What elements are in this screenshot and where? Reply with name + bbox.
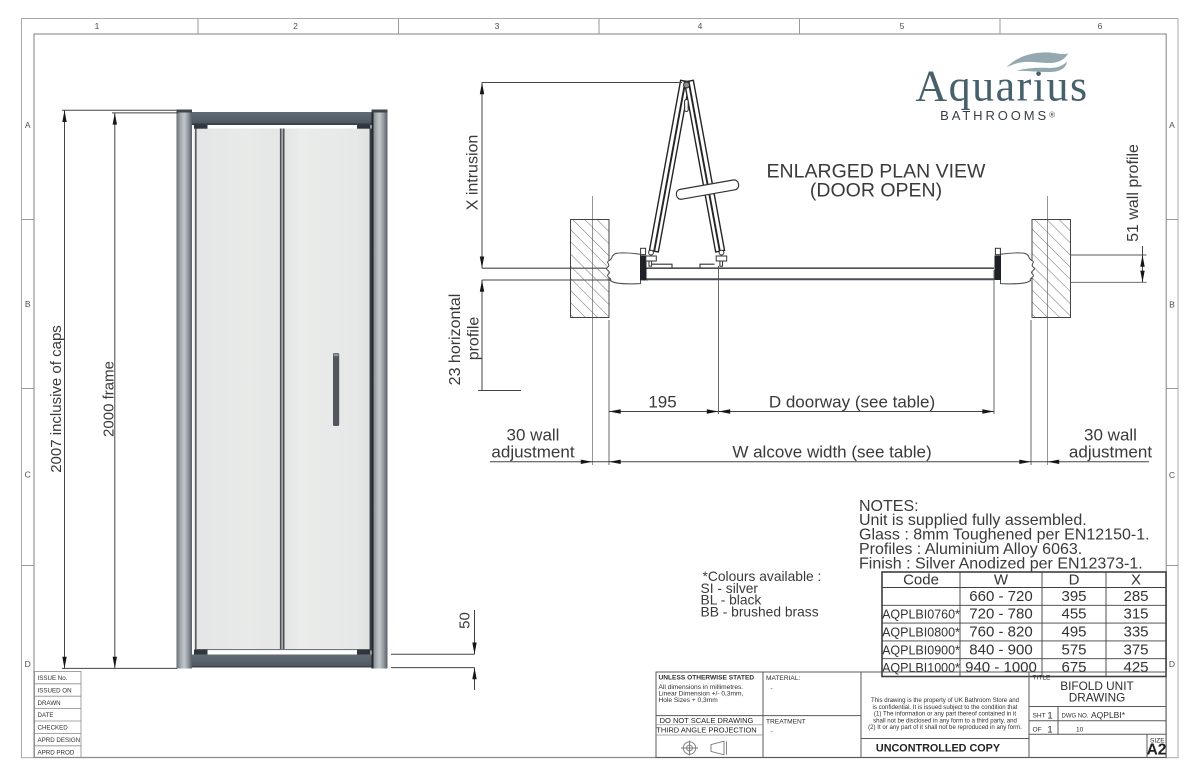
svg-text:BB - brushed brass: BB - brushed brass: [701, 604, 819, 619]
svg-text:AQPLBI*: AQPLBI*: [1091, 710, 1126, 720]
svg-text:D doorway (see table): D doorway (see table): [769, 393, 935, 412]
svg-text:APRD DESIGN: APRD DESIGN: [38, 737, 81, 744]
svg-text:1: 1: [95, 21, 100, 31]
svg-text:adjustment: adjustment: [491, 443, 574, 462]
svg-text:DRAWING: DRAWING: [1069, 691, 1126, 705]
svg-text:DRAWN: DRAWN: [38, 700, 61, 707]
svg-text:ISSUED ON: ISSUED ON: [38, 687, 72, 694]
svg-text:D: D: [1069, 572, 1080, 589]
svg-text:AQPLBI1000*: AQPLBI1000*: [882, 661, 960, 675]
svg-text:375: 375: [1123, 641, 1148, 658]
svg-text:B: B: [1169, 300, 1175, 310]
svg-text:285: 285: [1123, 588, 1148, 605]
svg-text:APRD PROD: APRD PROD: [38, 749, 75, 756]
svg-text:425: 425: [1123, 659, 1148, 676]
svg-text:760 - 820: 760 - 820: [969, 624, 1032, 641]
svg-text:profile: profile: [466, 317, 483, 361]
svg-text:6: 6: [1098, 21, 1103, 31]
svg-text:DO NOT SCALE DRAWING: DO NOT SCALE DRAWING: [660, 716, 754, 725]
svg-text:DATE: DATE: [38, 712, 54, 719]
svg-text:335: 335: [1123, 624, 1148, 641]
svg-text:A2: A2: [1147, 742, 1167, 759]
svg-text:Code: Code: [903, 572, 939, 589]
svg-text:-: -: [771, 729, 773, 736]
svg-text:1: 1: [1047, 711, 1052, 722]
svg-text:Aquarius: Aquarius: [915, 62, 1088, 111]
svg-text:(DOOR OPEN): (DOOR OPEN): [810, 180, 942, 202]
svg-text:ISSUE No.: ISSUE No.: [38, 675, 68, 682]
svg-text:23 horizontal: 23 horizontal: [447, 294, 464, 386]
svg-text:3: 3: [495, 21, 500, 31]
svg-text:2000 frame: 2000 frame: [101, 361, 118, 437]
svg-text:CHECKED: CHECKED: [38, 725, 69, 732]
svg-text:adjustment: adjustment: [1069, 443, 1152, 462]
svg-text:10: 10: [1076, 727, 1084, 734]
svg-text:840 - 900: 840 - 900: [969, 641, 1032, 658]
svg-text:TREATMENT: TREATMENT: [766, 718, 806, 725]
svg-text:A: A: [25, 120, 31, 130]
svg-text:THIRD ANGLE PROJECTION: THIRD ANGLE PROJECTION: [656, 726, 756, 735]
svg-text:315: 315: [1123, 606, 1148, 623]
svg-text:Hole Sizes + 0,3mm: Hole Sizes + 0,3mm: [659, 697, 719, 704]
svg-text:720 - 780: 720 - 780: [969, 606, 1032, 623]
svg-text:50: 50: [457, 612, 474, 629]
svg-text:455: 455: [1061, 606, 1086, 623]
svg-text:940 - 1000: 940 - 1000: [965, 659, 1037, 676]
svg-text:395: 395: [1061, 588, 1086, 605]
svg-text:495: 495: [1061, 624, 1086, 641]
svg-text:1: 1: [1047, 725, 1052, 736]
svg-text:AQPLBI0800*: AQPLBI0800*: [882, 626, 960, 640]
svg-text:660 - 720: 660 - 720: [969, 588, 1032, 605]
svg-text:SHT: SHT: [1033, 713, 1046, 720]
svg-text:2007 inclusive of caps: 2007 inclusive of caps: [48, 325, 65, 473]
svg-text:C: C: [25, 470, 31, 480]
svg-text:2: 2: [293, 21, 298, 31]
svg-text:51 wall profile: 51 wall profile: [1125, 144, 1142, 242]
svg-text:DWG NO.: DWG NO.: [1062, 714, 1089, 720]
svg-text:X intrusion: X intrusion: [465, 135, 482, 211]
svg-text:UNLESS OTHERWISE STATED: UNLESS OTHERWISE STATED: [659, 675, 755, 682]
svg-text:TITLE: TITLE: [1033, 675, 1052, 682]
svg-text:4: 4: [698, 21, 703, 31]
svg-text:B: B: [25, 299, 31, 309]
svg-text:AQPLBI0760*: AQPLBI0760*: [882, 608, 960, 622]
svg-text:-: -: [771, 686, 773, 693]
svg-text:MATERIAL:: MATERIAL:: [766, 675, 800, 682]
svg-text:AQPLBI0900*: AQPLBI0900*: [882, 643, 960, 657]
svg-text:D: D: [25, 659, 31, 669]
svg-text:UNCONTROLLED COPY: UNCONTROLLED COPY: [876, 743, 1001, 755]
svg-text:D: D: [1169, 659, 1175, 669]
svg-text:5: 5: [900, 21, 905, 31]
svg-text:W alcove width (see table): W alcove width (see table): [732, 443, 931, 462]
svg-text:W: W: [994, 572, 1009, 589]
svg-text:BATHROOMS®: BATHROOMS®: [940, 108, 1058, 123]
svg-text:(2) It or any part of it shall: (2) It or any part of it shall not be re…: [868, 724, 1022, 731]
svg-text:Finish : Silver Anodized per E: Finish : Silver Anodized per EN12373-1.: [859, 555, 1143, 572]
svg-text:195: 195: [648, 393, 676, 412]
svg-text:OF: OF: [1033, 727, 1042, 734]
svg-text:X: X: [1131, 572, 1141, 589]
svg-text:C: C: [1169, 470, 1175, 480]
svg-text:575: 575: [1061, 641, 1086, 658]
svg-text:A: A: [1169, 120, 1175, 130]
svg-text:675: 675: [1061, 659, 1086, 676]
